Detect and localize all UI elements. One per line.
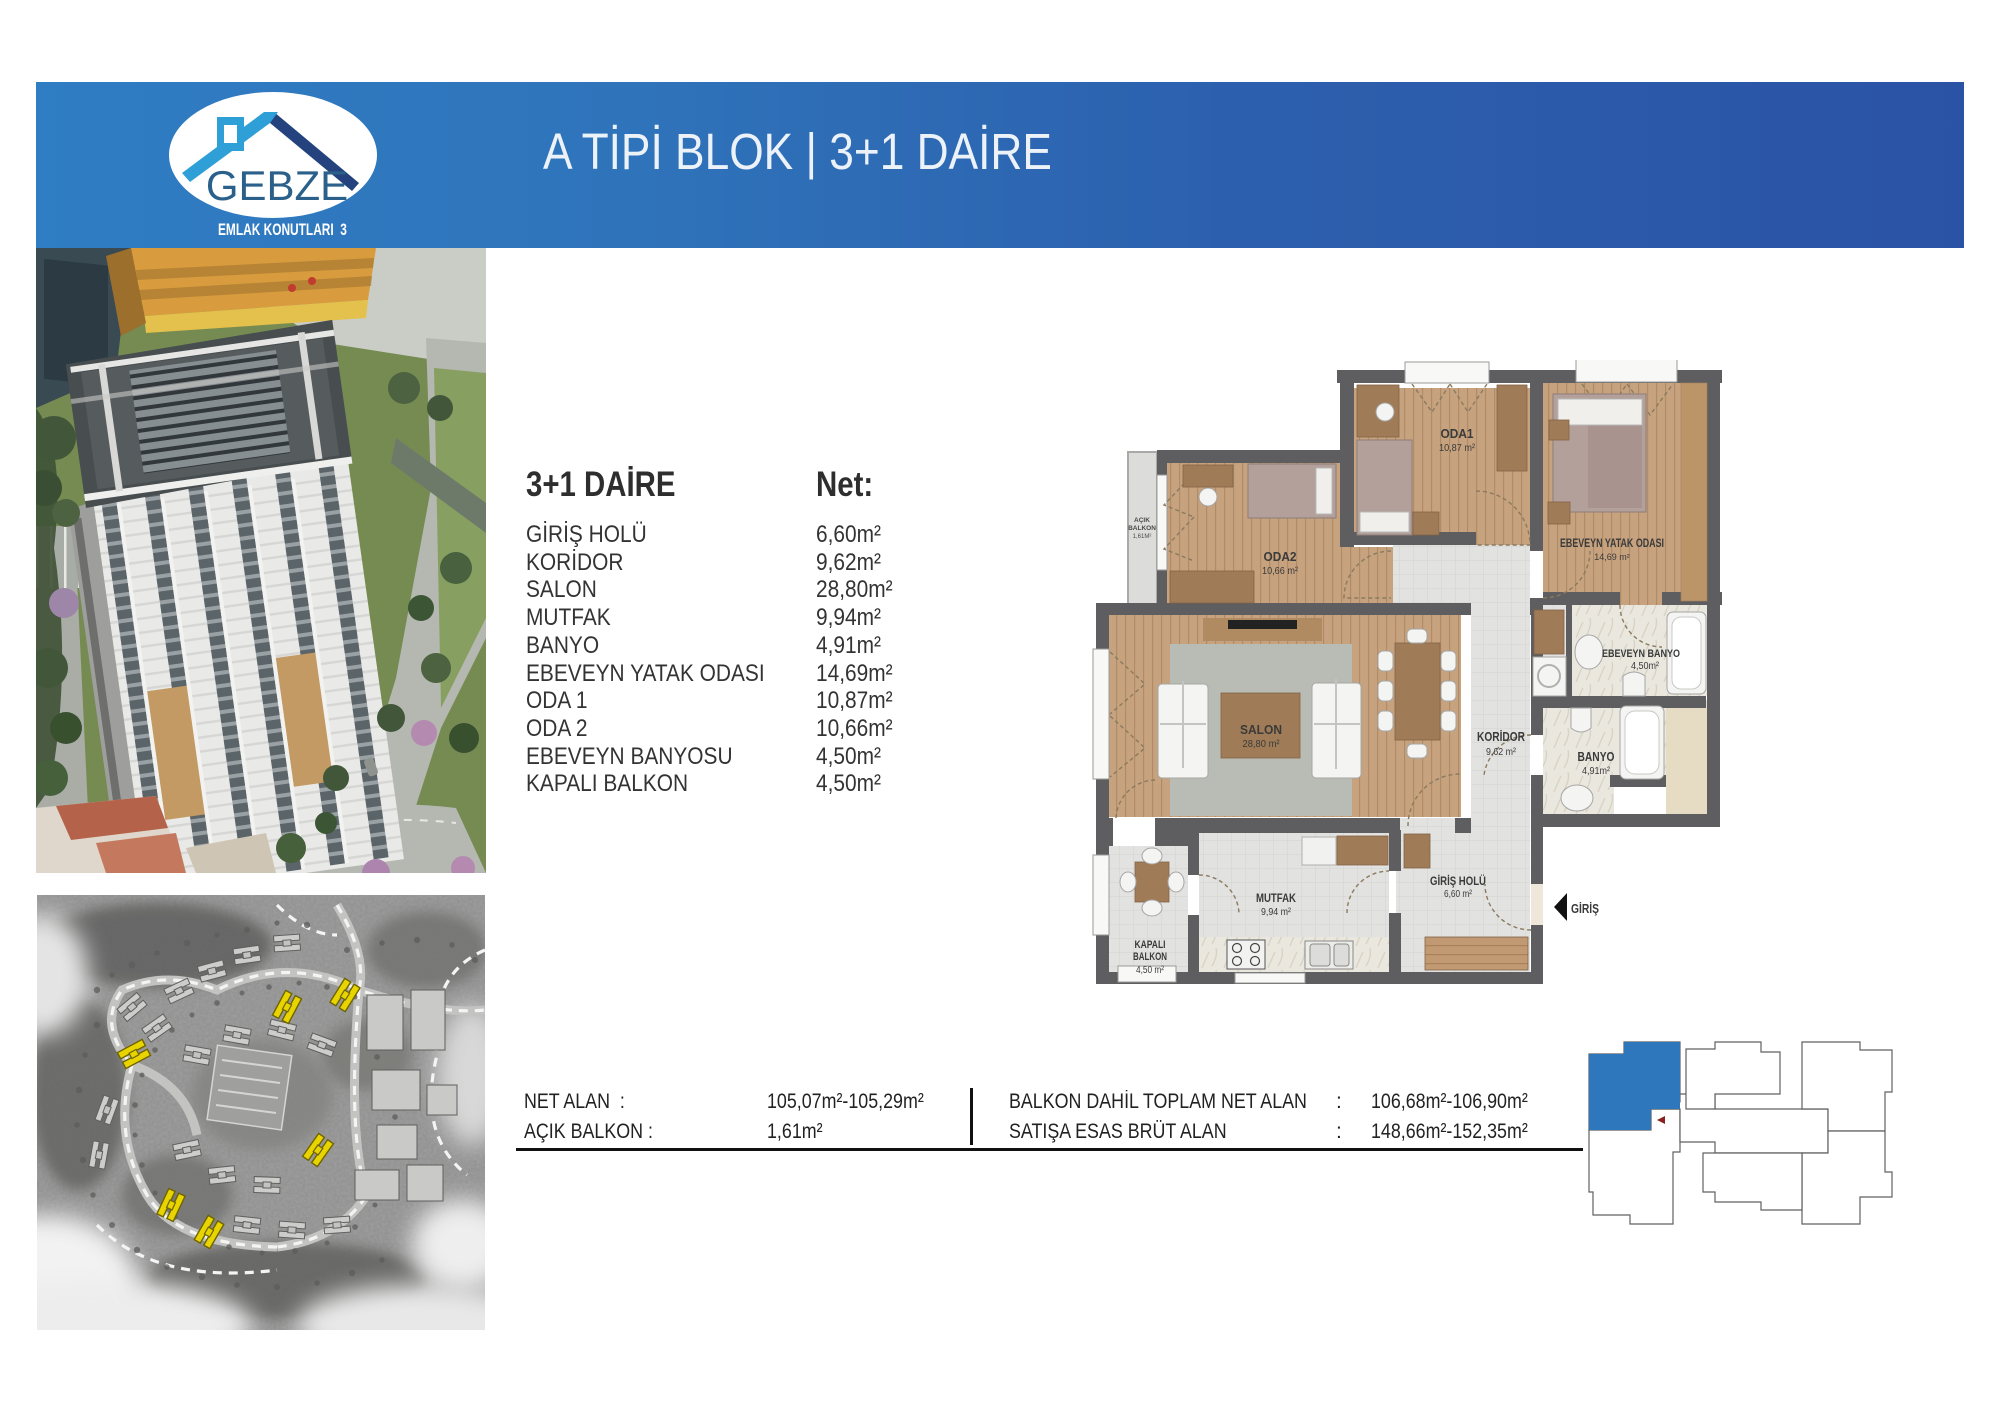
svg-text:9,62 m²: 9,62 m²: [1486, 747, 1517, 758]
svg-text:AÇIK: AÇIK: [1134, 517, 1150, 524]
svg-text:10,66 m²: 10,66 m²: [1262, 566, 1299, 577]
svg-text:9,94 m²: 9,94 m²: [1261, 907, 1292, 918]
svg-text:GİRİŞ: GİRİŞ: [1571, 901, 1599, 916]
svg-text:4,91m²: 4,91m²: [1582, 766, 1611, 777]
svg-text:KORİDOR: KORİDOR: [1477, 729, 1525, 744]
svg-text:BALKON: BALKON: [1133, 951, 1167, 963]
svg-text:ODA2: ODA2: [1264, 549, 1297, 564]
svg-text:4,50 m²: 4,50 m²: [1136, 965, 1165, 976]
svg-text:GİRİŞ HOLÜ: GİRİŞ HOLÜ: [1430, 873, 1486, 888]
svg-text:BALKON: BALKON: [1128, 525, 1156, 532]
svg-text:1,61M²: 1,61M²: [1133, 534, 1152, 540]
svg-text:14,69 m²: 14,69 m²: [1594, 552, 1630, 562]
svg-text:EBEVEYN YATAK ODASI: EBEVEYN YATAK ODASI: [1560, 536, 1664, 550]
svg-text:GEBZE: GEBZE: [206, 162, 348, 209]
svg-text:SALON: SALON: [1240, 722, 1282, 737]
svg-text:EBEVEYN BANYO: EBEVEYN BANYO: [1602, 648, 1680, 660]
svg-text:28,80 m²: 28,80 m²: [1243, 739, 1281, 750]
svg-text:6,60 m²: 6,60 m²: [1444, 889, 1473, 900]
svg-text:MUTFAK: MUTFAK: [1256, 891, 1296, 905]
svg-text:KAPALI: KAPALI: [1135, 939, 1166, 951]
svg-text:BANYO: BANYO: [1578, 749, 1615, 764]
svg-text:4,50m²: 4,50m²: [1631, 661, 1660, 672]
svg-text:10,87 m²: 10,87 m²: [1439, 443, 1476, 454]
svg-text:ODA1: ODA1: [1441, 426, 1474, 441]
